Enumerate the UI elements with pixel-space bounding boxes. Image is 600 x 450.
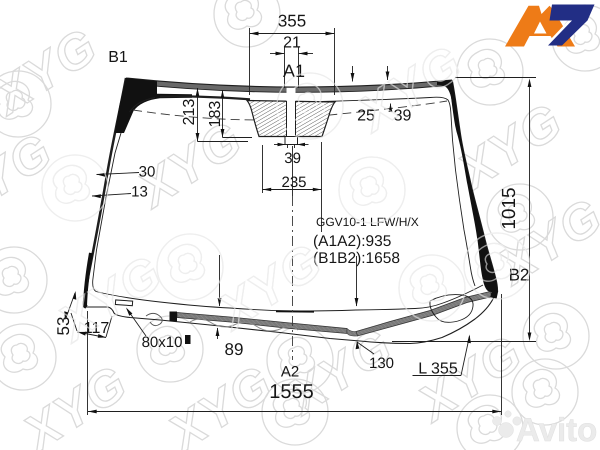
svg-text:89: 89 bbox=[225, 340, 244, 359]
svg-text:183: 183 bbox=[207, 101, 224, 128]
svg-text:(A1A2):935: (A1A2):935 bbox=[313, 233, 391, 250]
svg-text:L 355: L 355 bbox=[418, 361, 458, 378]
svg-text:13: 13 bbox=[131, 184, 148, 201]
svg-text:A1: A1 bbox=[283, 61, 305, 81]
svg-text:21: 21 bbox=[283, 35, 301, 52]
svg-text:235: 235 bbox=[281, 174, 306, 191]
svg-text:1555: 1555 bbox=[269, 381, 314, 403]
svg-text:39: 39 bbox=[284, 150, 301, 167]
svg-text:130: 130 bbox=[369, 355, 394, 372]
svg-text:80x10: 80x10 bbox=[142, 334, 183, 351]
svg-text:(B1B2):1658: (B1B2):1658 bbox=[313, 250, 400, 267]
svg-text:B1: B1 bbox=[108, 49, 128, 66]
svg-text:213: 213 bbox=[181, 99, 198, 126]
svg-text:A2: A2 bbox=[281, 364, 299, 381]
svg-text:355: 355 bbox=[278, 12, 306, 31]
svg-text:30: 30 bbox=[139, 164, 156, 181]
svg-text:1015: 1015 bbox=[499, 187, 520, 229]
svg-text:Avito: Avito bbox=[516, 411, 597, 448]
